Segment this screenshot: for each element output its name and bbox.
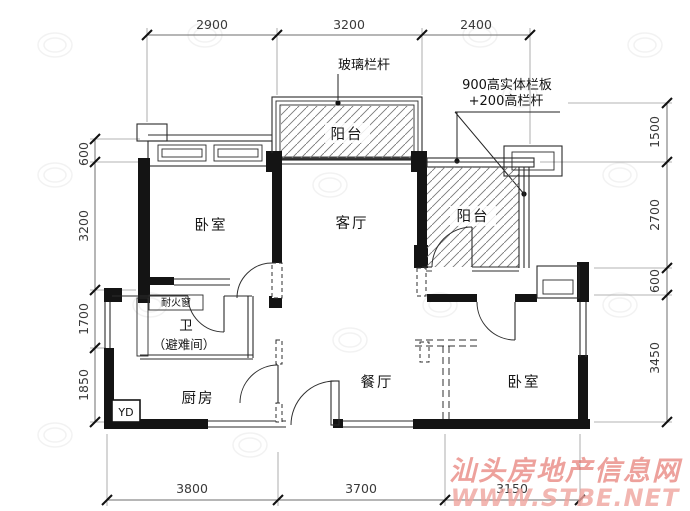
floor-plan-drawing: 2900 3200 2400 3800 3700 3150 600 3200 1…	[0, 0, 690, 511]
dim-left-2: 3200	[76, 210, 91, 242]
solid-railing-label-1: 900高实体栏板	[462, 77, 552, 93]
room-label-dining: 餐厅	[361, 374, 394, 391]
yd-label: YD	[117, 406, 133, 419]
dim-right-2: 2700	[647, 199, 662, 231]
door-leaf-entrance	[331, 381, 339, 425]
yd-box: YD	[112, 400, 140, 422]
room-label-bedroom-right: 卧室	[508, 374, 541, 391]
logo-watermark-pattern	[38, 23, 662, 457]
solid-railing-label-2: +200高栏杆	[469, 93, 544, 109]
room-label-living: 客厅	[336, 215, 369, 232]
site-watermark: 汕头房地产信息网 WWW.STBE.NET	[449, 456, 683, 511]
dim-top-2: 3200	[333, 17, 365, 32]
room-label-bathroom-note: （避难间）	[153, 337, 216, 352]
site-watermark-name: 汕头房地产信息网	[449, 456, 683, 487]
room-label-bedroom-left: 卧室	[195, 217, 228, 234]
room-label-kitchen: 厨房	[182, 390, 215, 407]
dim-left-4: 1850	[76, 369, 91, 401]
ac-platform-right	[537, 266, 579, 298]
bay-window-left	[137, 124, 272, 166]
room-label-bathroom: 卫	[179, 318, 193, 334]
glass-railing-label: 玻璃栏杆	[338, 58, 390, 73]
dim-left-1: 600	[76, 142, 91, 166]
annotation-glass-railing: 玻璃栏杆	[335, 58, 390, 106]
site-watermark-url: WWW.STBE.NET	[451, 484, 680, 511]
dim-top-1: 2900	[196, 17, 228, 32]
doors	[188, 263, 515, 425]
room-label-balcony-right: 阳台	[457, 208, 490, 225]
dim-left-3: 1700	[76, 303, 91, 335]
dim-right-3: 600	[647, 269, 662, 293]
balcony-top: 阳台	[266, 97, 427, 172]
fire-window-label: 耐火窗	[161, 296, 191, 309]
dim-bottom-1: 3800	[176, 481, 208, 496]
room-label-balcony-top: 阳台	[331, 126, 364, 143]
door-leaf-bedroom-left	[272, 263, 282, 298]
dim-right-1: 1500	[647, 116, 662, 148]
dim-top-3: 2400	[460, 17, 492, 32]
dim-right-4: 3450	[647, 342, 662, 374]
balcony-right: 阳台	[422, 146, 562, 271]
dim-bottom-2: 3700	[345, 481, 377, 496]
dimension-right: 1500 2700 600 3450	[540, 98, 672, 427]
